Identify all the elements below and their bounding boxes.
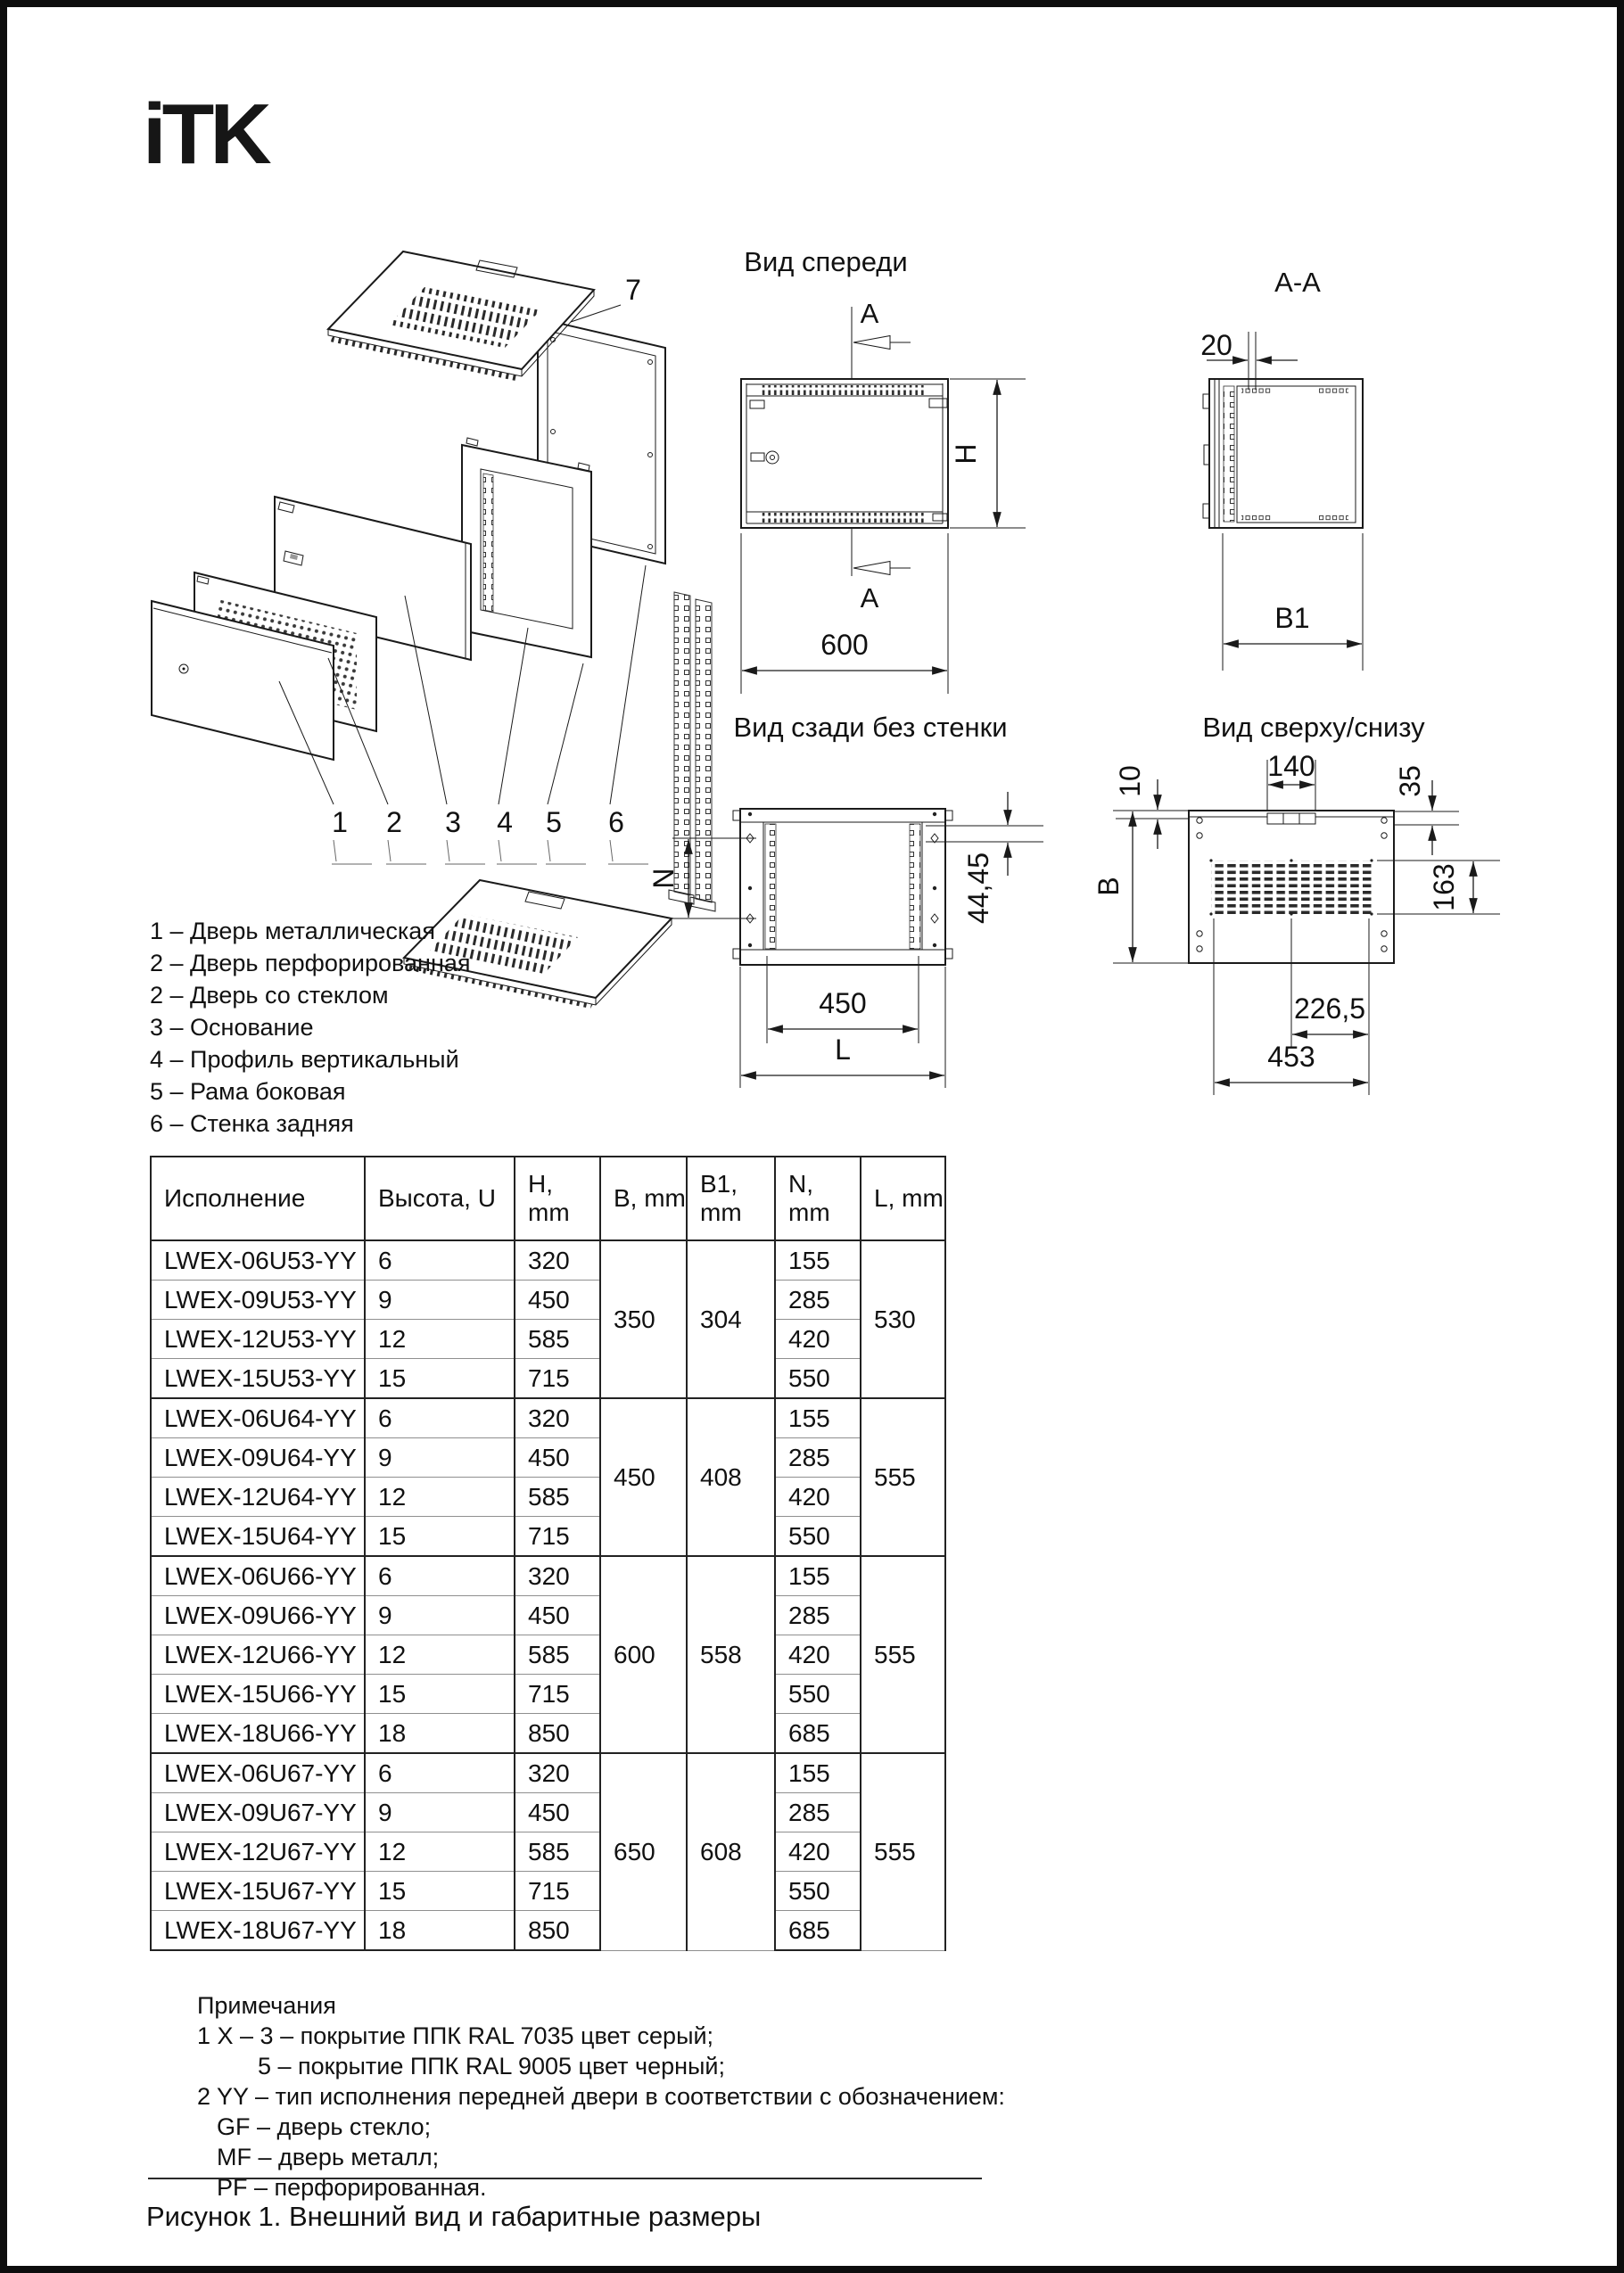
callout-7: 7	[625, 274, 641, 306]
table-row: LWEX-18U66-YY18850685	[151, 1714, 945, 1754]
table-row: LWEX-06U67-YY6320650608155555	[151, 1753, 945, 1793]
dim-N: N	[647, 868, 680, 888]
table-cell: 285	[775, 1793, 861, 1832]
dim-L: L	[835, 1034, 851, 1066]
table-cell: LWEX-06U66-YY	[151, 1556, 365, 1596]
col-header: Исполнение	[151, 1157, 365, 1240]
table-row: LWEX-15U66-YY15715550	[151, 1675, 945, 1714]
dim-height-H: H	[950, 443, 982, 464]
itk-logo: iTK	[143, 86, 268, 184]
callout-5: 5	[546, 806, 562, 838]
table-cell: 608	[687, 1753, 775, 1950]
table-cell: 600	[600, 1556, 687, 1753]
top-view: Вид сверху/снизу 140 10 35	[1092, 712, 1500, 1095]
table-cell: LWEX-15U53-YY	[151, 1359, 365, 1399]
note-line: MF – дверь металл;	[217, 2142, 1005, 2172]
table-cell: 320	[515, 1398, 600, 1438]
col-header: N, mm	[775, 1157, 861, 1240]
table-cell: 585	[515, 1320, 600, 1359]
notes-title: Примечания	[197, 1990, 1005, 2021]
table-cell: 285	[775, 1438, 861, 1478]
table-row: LWEX-12U53-YY12585420	[151, 1320, 945, 1359]
table-header-row: Исполнение Высота, U H, mm B, mm B1, mm …	[151, 1157, 945, 1240]
table-cell: 320	[515, 1753, 600, 1793]
section-view-title: A-A	[1274, 267, 1321, 298]
dim-10: 10	[1114, 765, 1146, 797]
cable-entry	[1267, 813, 1315, 824]
dim-44-45: 44,45	[962, 852, 994, 924]
table-cell: 15	[365, 1359, 515, 1399]
section-label-bottom: A	[861, 582, 879, 614]
callout-3: 3	[445, 806, 461, 838]
table-cell: 350	[600, 1240, 687, 1398]
table-row: LWEX-15U67-YY15715550	[151, 1872, 945, 1911]
table-cell: 850	[515, 1911, 600, 1951]
col-header: B1, mm	[687, 1157, 775, 1240]
table-cell: 9	[365, 1438, 515, 1478]
table-cell: 6	[365, 1398, 515, 1438]
exploded-view: 1 2 3 4 5 6 7	[152, 251, 715, 1009]
table-row: LWEX-09U67-YY9450285	[151, 1793, 945, 1832]
table-cell: 715	[515, 1872, 600, 1911]
dim-width-600: 600	[820, 629, 868, 661]
table-cell: 450	[515, 1281, 600, 1320]
table-cell: 450	[515, 1793, 600, 1832]
parts-legend: 1 – Дверь металлическая 2 – Дверь перфор…	[150, 915, 471, 1140]
note-line: 1 X – 3 – покрытие ППК RAL 7035 цвет сер…	[197, 2021, 1005, 2051]
table-cell: LWEX-12U64-YY	[151, 1478, 365, 1517]
table-cell: 550	[775, 1359, 861, 1399]
table-cell: 9	[365, 1281, 515, 1320]
legend-item: 2 – Дверь со стеклом	[150, 979, 471, 1011]
table-cell: 155	[775, 1753, 861, 1793]
table-cell: 450	[515, 1438, 600, 1478]
col-header: H, mm	[515, 1157, 600, 1240]
lock	[751, 453, 764, 461]
note-line: GF – дверь стекло;	[217, 2112, 1005, 2142]
table-cell: LWEX-18U66-YY	[151, 1714, 365, 1754]
table-row: LWEX-06U64-YY6320450408155555	[151, 1398, 945, 1438]
dim-163: 163	[1428, 863, 1460, 910]
table-row: LWEX-09U64-YY9450285	[151, 1438, 945, 1478]
note-line: 5 – покрытие ППК RAL 9005 цвет черный;	[258, 2051, 1005, 2081]
table-cell: 6	[365, 1753, 515, 1793]
datasheet-page: iTK	[0, 0, 1624, 2273]
table-cell: 420	[775, 1478, 861, 1517]
table-cell: 715	[515, 1675, 600, 1714]
table-cell: 6	[365, 1240, 515, 1281]
table-cell: 550	[775, 1872, 861, 1911]
dim-453: 453	[1267, 1041, 1315, 1073]
section-view: A-A 20 B1	[1200, 267, 1363, 671]
top-view-title: Вид сверху/снизу	[1202, 712, 1425, 743]
table-cell: 155	[775, 1556, 861, 1596]
table-cell: 555	[861, 1753, 945, 1950]
legend-item: 2 – Дверь перфорированная	[150, 947, 471, 979]
legend-item: 5 – Рама боковая	[150, 1075, 471, 1108]
section-label-top: A	[861, 298, 879, 329]
table-cell: LWEX-12U67-YY	[151, 1832, 365, 1872]
table-cell: LWEX-06U53-YY	[151, 1240, 365, 1281]
table-cell: 420	[775, 1635, 861, 1675]
legend-item: 3 – Основание	[150, 1011, 471, 1043]
table-cell: 585	[515, 1832, 600, 1872]
table-row: LWEX-15U64-YY15715550	[151, 1517, 945, 1557]
table-cell: 555	[861, 1398, 945, 1556]
rear-view-title: Вид сзади без стенки	[733, 712, 1007, 743]
table-cell: 155	[775, 1240, 861, 1281]
table-cell: 715	[515, 1359, 600, 1399]
table-cell: 585	[515, 1635, 600, 1675]
legend-item: 1 – Дверь металлическая	[150, 915, 471, 947]
table-cell: 15	[365, 1517, 515, 1557]
table-cell: 585	[515, 1478, 600, 1517]
table-cell: 550	[775, 1517, 861, 1557]
table-cell: LWEX-18U67-YY	[151, 1911, 365, 1951]
table-cell: 450	[515, 1596, 600, 1635]
table-cell: 320	[515, 1240, 600, 1281]
separator-line	[148, 2178, 982, 2179]
table-cell: 6	[365, 1556, 515, 1596]
col-header: B, mm	[600, 1157, 687, 1240]
table-cell: 715	[515, 1517, 600, 1557]
table-cell: LWEX-06U64-YY	[151, 1398, 365, 1438]
table-cell: 320	[515, 1556, 600, 1596]
dim-450: 450	[819, 987, 866, 1019]
table-cell: LWEX-06U67-YY	[151, 1753, 365, 1793]
table-row: LWEX-09U53-YY9450285	[151, 1281, 945, 1320]
table-row: LWEX-12U64-YY12585420	[151, 1478, 945, 1517]
legend-item: 6 – Стенка задняя	[150, 1108, 471, 1140]
table-cell: 650	[600, 1753, 687, 1950]
note-line: 2 YY – тип исполнения передней двери в с…	[197, 2081, 1005, 2112]
table-cell: LWEX-15U66-YY	[151, 1675, 365, 1714]
table-row: LWEX-15U53-YY15715550	[151, 1359, 945, 1399]
table-cell: LWEX-12U53-YY	[151, 1320, 365, 1359]
table-cell: 558	[687, 1556, 775, 1753]
table-cell: LWEX-15U67-YY	[151, 1872, 365, 1911]
table-row: LWEX-18U67-YY18850685	[151, 1911, 945, 1951]
table-cell: 550	[775, 1675, 861, 1714]
table-cell: 685	[775, 1911, 861, 1951]
col-header: L, mm	[861, 1157, 945, 1240]
table-row: LWEX-06U53-YY6320350304155530	[151, 1240, 945, 1281]
callout-1: 1	[332, 806, 348, 838]
dim-226-5: 226,5	[1294, 992, 1365, 1025]
table-cell: 15	[365, 1872, 515, 1911]
table-row: LWEX-09U66-YY9450285	[151, 1596, 945, 1635]
callout-6: 6	[608, 806, 624, 838]
callout-shelves	[332, 840, 648, 864]
table-cell: 155	[775, 1398, 861, 1438]
table-cell: LWEX-09U66-YY	[151, 1596, 365, 1635]
table-cell: 15	[365, 1675, 515, 1714]
rack-rail	[765, 824, 776, 949]
table-row: LWEX-12U66-YY12585420	[151, 1635, 945, 1675]
dim-140: 140	[1267, 750, 1315, 782]
table-cell: 285	[775, 1281, 861, 1320]
table-cell: 18	[365, 1714, 515, 1754]
vent-field	[1211, 861, 1372, 914]
table-row: LWEX-12U67-YY12585420	[151, 1832, 945, 1872]
table-cell: 12	[365, 1320, 515, 1359]
table-cell: 304	[687, 1240, 775, 1398]
table-cell: 850	[515, 1714, 600, 1754]
col-header: Высота, U	[365, 1157, 515, 1240]
table-cell: 12	[365, 1478, 515, 1517]
table-cell: LWEX-12U66-YY	[151, 1635, 365, 1675]
table-cell: LWEX-09U64-YY	[151, 1438, 365, 1478]
notes-block: Примечания 1 X – 3 – покрытие ППК RAL 70…	[197, 1990, 1005, 2203]
figure-caption: Рисунок 1. Внешний вид и габаритные разм…	[146, 2201, 761, 2233]
table-cell: 685	[775, 1714, 861, 1754]
dim-35: 35	[1394, 765, 1426, 797]
callout-4: 4	[497, 806, 513, 838]
table-cell: 408	[687, 1398, 775, 1556]
dim-20: 20	[1200, 329, 1232, 361]
hinge	[1203, 394, 1209, 408]
table-cell: 9	[365, 1596, 515, 1635]
table-body: LWEX-06U53-YY6320350304155530LWEX-09U53-…	[151, 1240, 945, 1950]
table-cell: 18	[365, 1911, 515, 1951]
callout-2: 2	[386, 806, 402, 838]
legend-item: 4 – Профиль вертикальный	[150, 1043, 471, 1075]
spec-table: Исполнение Высота, U H, mm B, mm B1, mm …	[150, 1156, 946, 1951]
table-cell: 12	[365, 1635, 515, 1675]
table-cell: 9	[365, 1793, 515, 1832]
dim-B: B	[1092, 877, 1125, 895]
table-cell: LWEX-15U64-YY	[151, 1517, 365, 1557]
table-row: LWEX-06U66-YY6320600558155555	[151, 1556, 945, 1596]
dim-B1: B1	[1274, 602, 1309, 634]
table-cell: 420	[775, 1320, 861, 1359]
latch-cutout	[750, 400, 764, 408]
front-view: Вид спереди A A	[741, 246, 1026, 694]
table-cell: LWEX-09U67-YY	[151, 1793, 365, 1832]
table-cell: 285	[775, 1596, 861, 1635]
table-cell: 12	[365, 1832, 515, 1872]
table-cell: 450	[600, 1398, 687, 1556]
part-vertical-profile	[674, 592, 690, 895]
table-cell: 530	[861, 1240, 945, 1398]
table-cell: 555	[861, 1556, 945, 1753]
table-cell: LWEX-09U53-YY	[151, 1281, 365, 1320]
table-cell: 420	[775, 1832, 861, 1872]
front-view-title: Вид спереди	[744, 246, 907, 277]
